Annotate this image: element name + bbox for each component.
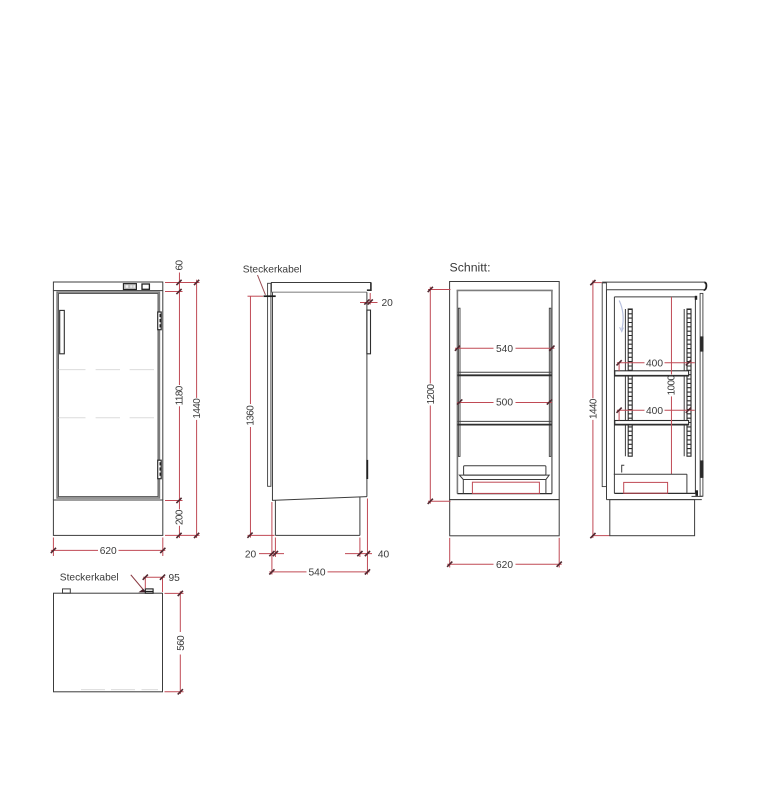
svg-text:1000: 1000 xyxy=(667,375,678,396)
svg-text:620: 620 xyxy=(496,560,513,571)
svg-text:60: 60 xyxy=(175,260,186,271)
svg-text:Steckerkabel: Steckerkabel xyxy=(60,573,119,584)
svg-text:1440: 1440 xyxy=(192,398,203,419)
svg-text:95: 95 xyxy=(169,573,181,584)
svg-text:540: 540 xyxy=(496,344,513,355)
svg-text:Schnitt:: Schnitt: xyxy=(450,260,491,274)
svg-text:20: 20 xyxy=(245,549,257,560)
svg-text:560: 560 xyxy=(176,635,187,651)
svg-text:500: 500 xyxy=(496,398,513,409)
svg-text:Steckerkabel: Steckerkabel xyxy=(243,265,302,276)
svg-text:620: 620 xyxy=(100,546,117,557)
svg-text:1360: 1360 xyxy=(246,405,257,426)
svg-text:400: 400 xyxy=(646,359,663,370)
svg-text:200: 200 xyxy=(175,509,186,525)
svg-text:20: 20 xyxy=(382,298,394,309)
svg-text:400: 400 xyxy=(646,406,663,417)
svg-text:540: 540 xyxy=(309,568,326,579)
svg-text:1440: 1440 xyxy=(588,398,599,419)
svg-text:1180: 1180 xyxy=(175,385,186,405)
svg-text:40: 40 xyxy=(378,549,390,560)
svg-text:1200: 1200 xyxy=(426,384,437,405)
